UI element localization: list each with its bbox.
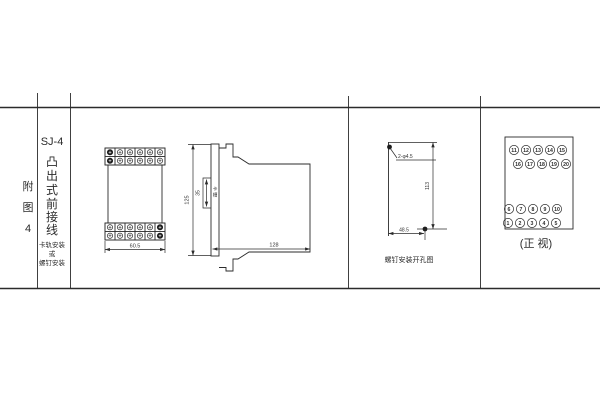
drawing-frame	[0, 93, 600, 289]
side-height-dim: 125	[185, 195, 191, 204]
slot-label-char-2: 槽	[213, 192, 218, 199]
slot-dim: 35	[196, 190, 202, 196]
mount-note-line-1: 卡轨安装	[39, 240, 66, 249]
terminal-row-1-5: 1 2 3 4 5	[503, 218, 560, 227]
terminal-number: 5	[555, 221, 558, 227]
terminal-screw	[105, 232, 115, 241]
style-char-2: 出	[46, 169, 58, 183]
terminal-row-16-20: 16 17 18 19 20	[513, 159, 570, 168]
mount-note-line-2: 或	[49, 249, 56, 258]
terminal-number: 15	[559, 148, 565, 154]
leader-line	[390, 148, 397, 158]
terminal-screw	[115, 148, 125, 157]
terminal-number: 13	[535, 148, 541, 154]
terminal-screw-dark	[155, 223, 165, 232]
terminal-screw	[135, 148, 145, 157]
terminal-screw	[145, 157, 155, 166]
terminal-screw	[125, 148, 135, 157]
terminal-number: 10	[554, 207, 560, 213]
holes-label: 2-φ4.5	[398, 154, 413, 160]
drill-view-caption: 螺钉安装开孔图	[385, 255, 434, 264]
terminal-screw	[135, 232, 145, 241]
figure-char-3: 4	[25, 223, 31, 235]
model-title-column: SJ-4 凸 出 式 前 接 线 卡轨安装 或 螺钉安装	[39, 136, 66, 267]
drill-width-dim: 48.5	[399, 228, 409, 234]
terminal-screw	[115, 223, 125, 232]
mount-note-line-3: 螺钉安装	[39, 258, 66, 267]
style-char-3: 式	[46, 183, 58, 197]
terminal-number: 17	[527, 162, 533, 168]
drill-height-dim: 113	[425, 182, 431, 190]
relay-front-view: 60.5	[105, 148, 165, 253]
terminal-number: 7	[520, 207, 523, 213]
rail-slot	[203, 178, 211, 208]
side-depth-dim: 128	[269, 243, 278, 249]
front-case-body	[108, 165, 162, 223]
technical-drawing: 附 图 4 SJ-4 凸 出 式 前 接 线 卡轨安装 或 螺钉安装	[0, 0, 600, 400]
drill-hole-top	[387, 145, 392, 150]
side-front-plate	[211, 144, 219, 256]
slot-label-char-1: 卡	[213, 186, 218, 193]
style-char-1: 凸	[46, 155, 58, 169]
terminal-number: 2	[519, 221, 522, 227]
terminal-screw-dark	[105, 148, 115, 157]
terminal-screw	[145, 232, 155, 241]
terminal-number: 4	[543, 221, 546, 227]
terminal-screw	[115, 157, 125, 166]
terminal-number: 9	[544, 207, 547, 213]
terminal-screw	[145, 148, 155, 157]
screw-mounting-drill-view: 2-φ4.5 113 48.5 螺钉安装开孔图	[385, 142, 448, 264]
terminal-screw	[125, 232, 135, 241]
terminal-screw-dark	[155, 232, 165, 241]
style-char-5: 接	[46, 209, 58, 224]
terminal-number: 3	[531, 221, 534, 227]
terminal-screw	[125, 157, 135, 166]
terminal-number: 16	[515, 162, 521, 168]
terminal-number: 20	[563, 162, 569, 168]
terminal-screw-dark	[105, 157, 115, 166]
model-label: SJ-4	[41, 136, 64, 148]
figure-char-2: 图	[23, 201, 34, 214]
front-width-dim: 60.5	[130, 244, 141, 250]
terminal-screw	[135, 157, 145, 166]
terminal-screw	[105, 223, 115, 232]
figure-char-1: 附	[23, 179, 34, 193]
style-char-4: 前	[46, 196, 58, 211]
style-char-6: 线	[46, 223, 58, 237]
terminal-view-caption: (正 视)	[520, 236, 552, 250]
terminal-screw	[125, 223, 135, 232]
terminal-number: 6	[508, 207, 511, 213]
terminal-layout-view: 11 12 13 14 15 16 17 18 19 20 6	[503, 137, 573, 250]
terminal-screw	[155, 157, 165, 166]
terminal-number: 11	[511, 148, 517, 154]
figure-number-column: 附 图 4	[23, 179, 34, 235]
terminal-row-6-10: 6 7 8 9 10	[504, 204, 561, 213]
terminal-screw	[115, 232, 125, 241]
terminal-row-11-15: 11 12 13 14 15	[509, 145, 566, 154]
terminal-screw	[155, 148, 165, 157]
terminal-number: 1	[507, 221, 510, 227]
terminal-number: 19	[551, 162, 557, 168]
terminal-number: 14	[547, 148, 553, 154]
relay-side-view: 125 35 卡 槽 128	[185, 144, 311, 271]
scanned-figure-page: 附 图 4 SJ-4 凸 出 式 前 接 线 卡轨安装 或 螺钉安装	[0, 0, 600, 400]
terminal-screw	[135, 223, 145, 232]
terminal-number: 12	[523, 148, 529, 154]
terminal-number: 8	[532, 207, 535, 213]
terminal-screw	[145, 223, 155, 232]
side-case-profile	[219, 144, 310, 271]
terminal-number: 18	[539, 162, 545, 168]
